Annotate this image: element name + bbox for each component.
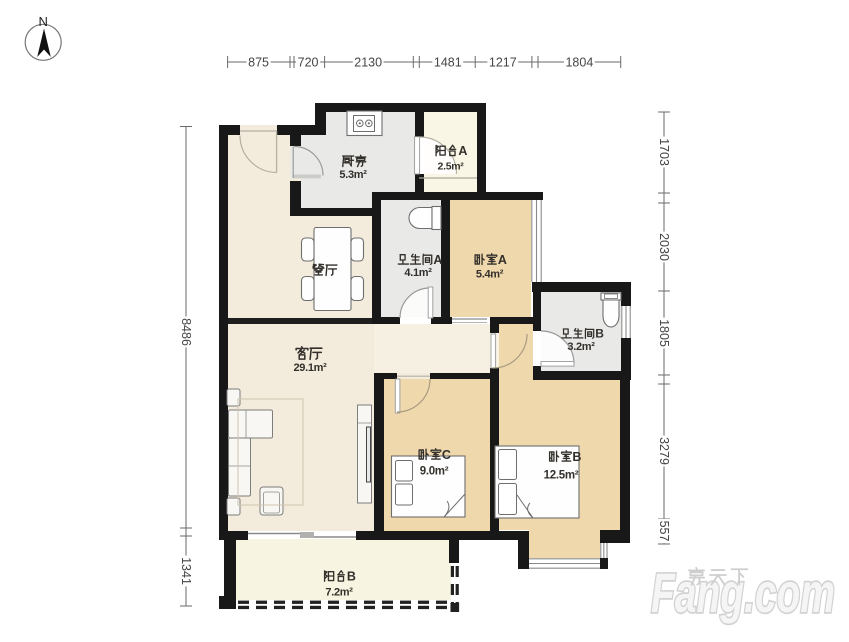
svg-text:8486: 8486 <box>179 318 193 346</box>
svg-text:A: A <box>433 253 442 267</box>
svg-text:C: C <box>442 448 451 462</box>
svg-text:3.2m²: 3.2m² <box>567 341 595 353</box>
svg-text:557: 557 <box>657 521 671 542</box>
svg-text:5.4m²: 5.4m² <box>476 269 504 281</box>
svg-text:5.3m²: 5.3m² <box>339 169 367 181</box>
svg-text:B: B <box>595 327 604 341</box>
svg-text:Fang.com: Fang.com <box>651 561 835 624</box>
svg-text:1341: 1341 <box>179 557 193 585</box>
svg-text:3279: 3279 <box>657 437 671 465</box>
svg-text:2030: 2030 <box>657 233 671 261</box>
svg-text:1804: 1804 <box>565 56 593 70</box>
svg-text:1805: 1805 <box>657 319 671 347</box>
svg-text:12.5m²: 12.5m² <box>544 470 579 482</box>
svg-text:B: B <box>347 569 356 583</box>
svg-text:B: B <box>572 450 581 464</box>
svg-text:720: 720 <box>298 56 319 70</box>
svg-text:9.0m²: 9.0m² <box>420 466 449 478</box>
svg-text:4.1m²: 4.1m² <box>404 267 432 279</box>
svg-text:875: 875 <box>248 56 269 70</box>
svg-text:2130: 2130 <box>354 56 382 70</box>
svg-text:2.5m²: 2.5m² <box>438 161 465 173</box>
svg-text:N: N <box>39 14 48 29</box>
svg-text:1703: 1703 <box>657 138 671 166</box>
svg-text:7.2m²: 7.2m² <box>325 587 353 599</box>
svg-text:A: A <box>458 144 467 158</box>
svg-text:1481: 1481 <box>434 56 462 70</box>
svg-text:29.1m²: 29.1m² <box>293 362 327 374</box>
svg-text:A: A <box>498 253 507 267</box>
svg-text:1217: 1217 <box>489 56 517 70</box>
